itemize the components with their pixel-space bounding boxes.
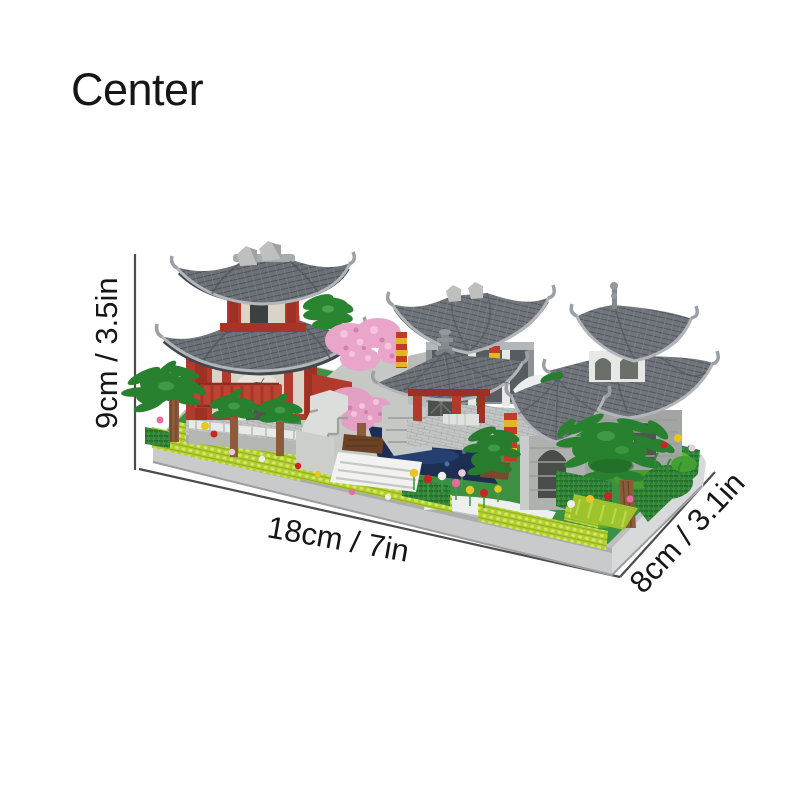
svg-text:9cm / 3.5in: 9cm / 3.5in xyxy=(89,277,124,429)
